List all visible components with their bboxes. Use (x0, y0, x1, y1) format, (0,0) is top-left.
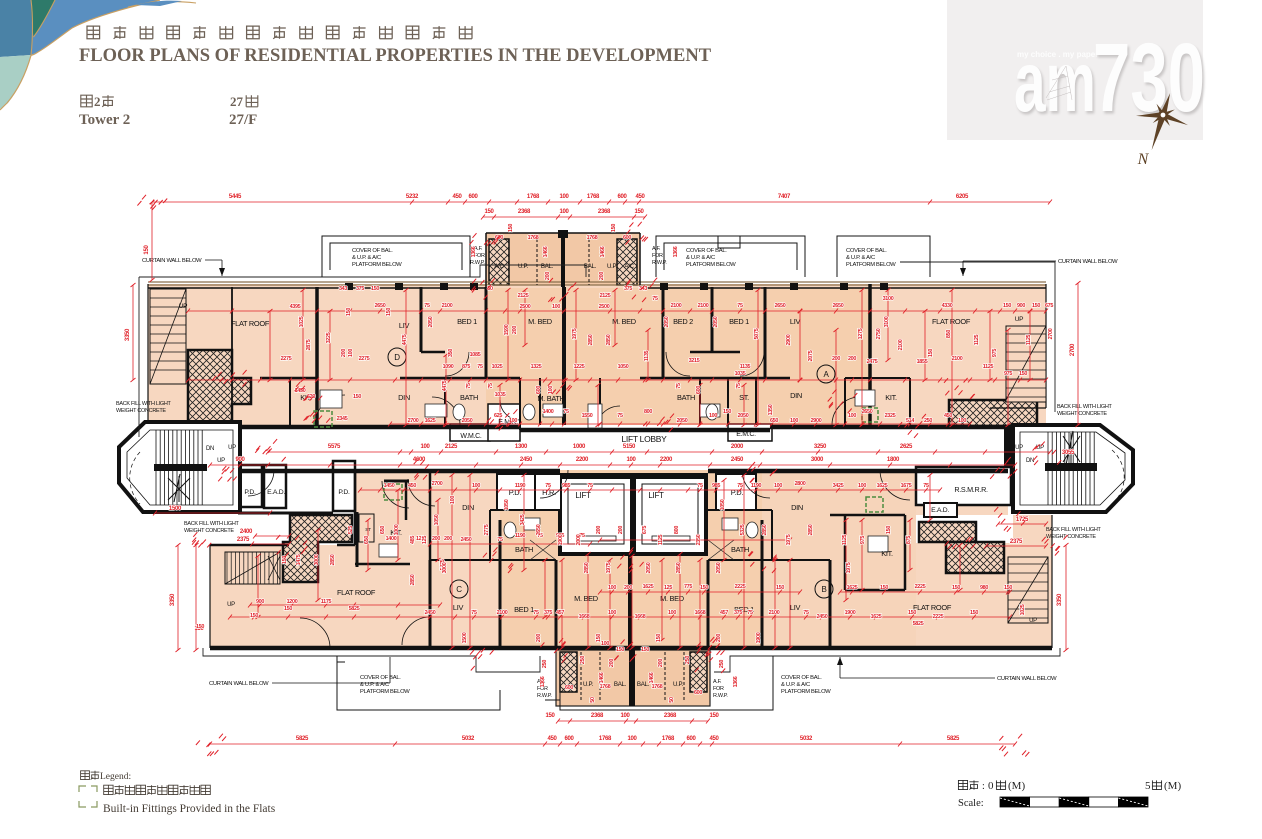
svg-text:3250: 3250 (814, 444, 827, 450)
svg-text:2225: 2225 (735, 584, 746, 590)
svg-text:5: 5 (1145, 780, 1151, 792)
svg-text:150: 150 (196, 624, 204, 630)
svg-text:WEIGHT CONCRETE: WEIGHT CONCRETE (1057, 411, 1107, 417)
svg-text:2368: 2368 (518, 209, 531, 215)
svg-text:CURTAIN WALL BELOW: CURTAIN WALL BELOW (142, 258, 202, 264)
svg-text:1225: 1225 (574, 364, 585, 370)
svg-text:1175: 1175 (321, 599, 332, 605)
svg-text:LIV: LIV (399, 321, 410, 330)
svg-text:FOR: FOR (713, 686, 724, 692)
svg-text:2345: 2345 (337, 416, 348, 422)
svg-text:150: 150 (611, 224, 617, 232)
svg-text:650: 650 (380, 526, 386, 534)
svg-text:UP: UP (228, 445, 236, 451)
svg-text:1050: 1050 (618, 364, 629, 370)
svg-text:WEIGHT CONCRETE: WEIGHT CONCRETE (1046, 534, 1096, 540)
svg-text:625: 625 (494, 413, 502, 419)
svg-text:Legend:: Legend: (100, 772, 131, 782)
svg-text:200: 200 (832, 356, 840, 362)
svg-text:1625: 1625 (643, 584, 654, 590)
svg-text:2050: 2050 (716, 562, 722, 573)
svg-text:1768: 1768 (527, 194, 540, 200)
svg-text:2850: 2850 (330, 554, 336, 565)
svg-text:75: 75 (676, 383, 682, 389)
svg-text:LIV: LIV (790, 603, 801, 612)
svg-text:450: 450 (408, 483, 416, 489)
svg-text:U.P.: U.P. (583, 681, 594, 688)
svg-text:2200: 2200 (660, 457, 673, 463)
svg-text:2625: 2625 (900, 444, 913, 450)
svg-text:100: 100 (668, 610, 676, 616)
svg-text:E.A.D.: E.A.D. (931, 507, 949, 514)
svg-text:1366: 1366 (471, 246, 477, 257)
svg-text:150: 150 (1019, 371, 1027, 377)
svg-text:1625: 1625 (871, 614, 882, 620)
svg-text:BAL.: BAL. (637, 681, 650, 688)
svg-text:2225: 2225 (915, 584, 926, 590)
svg-text:75: 75 (736, 383, 742, 389)
svg-text:200: 200 (596, 526, 602, 534)
svg-text:2775: 2775 (484, 524, 490, 535)
svg-text:1400: 1400 (386, 536, 397, 542)
svg-text:BED 2: BED 2 (673, 317, 693, 326)
svg-text:100: 100 (774, 483, 782, 489)
svg-text:1000: 1000 (394, 524, 400, 535)
svg-text:900: 900 (1017, 303, 1025, 309)
svg-text:2900: 2900 (786, 334, 792, 345)
svg-text:W.M.C.: W.M.C. (460, 433, 481, 440)
svg-text:1035: 1035 (735, 371, 746, 377)
svg-text:WEIGHT CONCRETE: WEIGHT CONCRETE (184, 528, 234, 534)
svg-text:5032: 5032 (462, 736, 475, 742)
svg-text:BAL.: BAL. (614, 681, 627, 688)
svg-text:0: 0 (988, 780, 994, 792)
svg-text:am: am (1014, 35, 1096, 130)
svg-text:3000: 3000 (811, 457, 824, 463)
svg-text:LIV: LIV (453, 603, 464, 612)
svg-text:343: 343 (339, 286, 347, 292)
svg-text:1668: 1668 (695, 610, 706, 616)
svg-text:C: C (456, 585, 462, 594)
svg-text:485: 485 (410, 536, 416, 544)
svg-text:R.S.M.R.R.: R.S.M.R.R. (954, 485, 988, 494)
svg-text:100: 100 (608, 610, 616, 616)
svg-text:2125: 2125 (600, 293, 611, 299)
svg-text:75: 75 (471, 610, 477, 616)
svg-text:75: 75 (587, 483, 593, 489)
svg-text:4395: 4395 (290, 304, 301, 310)
svg-text:2100: 2100 (442, 303, 453, 309)
svg-text:150: 150 (970, 610, 978, 616)
svg-text:1325: 1325 (531, 364, 542, 370)
svg-text:525: 525 (348, 526, 354, 534)
svg-text:350: 350 (448, 349, 454, 357)
svg-text:P.D.: P.D. (338, 489, 350, 496)
svg-text:BACK FILL WITH LIGHT: BACK FILL WITH LIGHT (116, 401, 172, 407)
svg-text:DN: DN (1026, 458, 1034, 464)
svg-text:FLAT ROOF: FLAT ROOF (337, 588, 376, 597)
svg-text:150: 150 (371, 286, 379, 292)
svg-text:27/F: 27/F (229, 112, 257, 128)
svg-text:2450: 2450 (520, 457, 533, 463)
svg-text:3425: 3425 (520, 514, 526, 525)
svg-text:BAL.: BAL. (541, 263, 554, 270)
svg-text:800: 800 (644, 409, 652, 415)
svg-text:2000: 2000 (731, 444, 744, 450)
svg-text:150: 150 (886, 526, 892, 534)
svg-text:1625: 1625 (425, 418, 436, 424)
svg-text:1768: 1768 (528, 235, 539, 241)
svg-text:FLAT ROOF: FLAT ROOF (231, 319, 270, 328)
svg-text:R.W.P.: R.W.P. (470, 260, 485, 266)
svg-text:3000: 3000 (314, 554, 320, 565)
svg-text:2050: 2050 (428, 316, 434, 327)
svg-text:1550: 1550 (582, 413, 593, 419)
svg-text:R.W.P.: R.W.P. (713, 693, 728, 699)
svg-text:2750: 2750 (876, 328, 882, 339)
svg-text:75: 75 (617, 413, 623, 419)
svg-text:R.W.P.: R.W.P. (652, 260, 667, 266)
svg-text:3350: 3350 (1057, 593, 1063, 606)
svg-text:650: 650 (770, 418, 778, 424)
svg-text:150: 150 (353, 394, 361, 400)
svg-text:100: 100 (848, 413, 856, 419)
svg-text:450: 450 (547, 736, 557, 742)
svg-text:150: 150 (700, 585, 708, 591)
svg-text:1050: 1050 (504, 499, 510, 510)
svg-text:2875: 2875 (306, 339, 312, 350)
svg-text:2275: 2275 (359, 356, 370, 362)
svg-text:200: 200 (341, 349, 347, 357)
svg-text:2050: 2050 (462, 418, 473, 424)
svg-text:100: 100 (790, 418, 798, 424)
svg-text:2375: 2375 (1010, 539, 1023, 545)
svg-text:2368: 2368 (664, 713, 677, 719)
svg-text:100: 100 (626, 457, 636, 463)
svg-text:450: 450 (452, 194, 462, 200)
svg-text:600: 600 (536, 386, 542, 394)
svg-text:1366: 1366 (540, 676, 546, 687)
svg-text:BATH: BATH (731, 545, 749, 554)
svg-text:FLAT ROOF: FLAT ROOF (932, 317, 971, 326)
svg-text:2700: 2700 (1048, 328, 1054, 339)
svg-text:2350: 2350 (696, 534, 702, 545)
svg-text:FLAT ROOF: FLAT ROOF (913, 603, 952, 612)
svg-text:75: 75 (477, 364, 483, 370)
svg-text:2850: 2850 (808, 524, 814, 535)
svg-text:1190: 1190 (751, 483, 762, 489)
svg-text:& U.P. & A/C: & U.P. & A/C (846, 255, 875, 261)
svg-text:1366: 1366 (673, 246, 679, 257)
svg-text:2850: 2850 (762, 524, 768, 535)
svg-text:2800: 2800 (795, 481, 806, 487)
svg-text:150: 150 (776, 585, 784, 591)
svg-text:375: 375 (624, 286, 632, 292)
svg-text:1025: 1025 (492, 364, 503, 370)
svg-text:1125: 1125 (658, 534, 664, 545)
svg-text:1800: 1800 (887, 457, 900, 463)
svg-text:2050: 2050 (713, 316, 719, 327)
svg-text:1500: 1500 (169, 506, 182, 512)
svg-text:50: 50 (590, 697, 596, 703)
svg-text:5325: 5325 (740, 524, 746, 535)
svg-text:250: 250 (580, 656, 586, 664)
svg-text:5825: 5825 (296, 736, 309, 742)
svg-text:150: 150 (386, 308, 392, 316)
svg-text:A.F.: A.F. (652, 246, 661, 252)
svg-text:2125: 2125 (518, 293, 529, 299)
svg-text:600: 600 (694, 690, 702, 696)
svg-text:200: 200 (432, 536, 440, 542)
svg-text:5825: 5825 (913, 621, 924, 627)
svg-text:1768: 1768 (587, 194, 600, 200)
svg-text:150: 150 (616, 647, 624, 653)
svg-text:2075: 2075 (808, 350, 814, 361)
svg-text:3215: 3215 (689, 358, 700, 364)
svg-text:KIT.: KIT. (881, 549, 893, 558)
svg-text:1025: 1025 (1020, 604, 1026, 615)
svg-text:2368: 2368 (591, 713, 604, 719)
svg-text:3100: 3100 (884, 316, 890, 327)
svg-text:125: 125 (664, 585, 672, 591)
svg-text:1090: 1090 (443, 364, 454, 370)
svg-text:UP: UP (1015, 445, 1023, 451)
svg-text:& U.P. & A/C: & U.P. & A/C (352, 255, 381, 261)
svg-text:50: 50 (487, 286, 493, 292)
svg-text:100: 100 (559, 194, 569, 200)
svg-text:27: 27 (230, 94, 244, 109)
svg-text:H.R.: H.R. (542, 488, 556, 497)
svg-text:1125: 1125 (974, 334, 980, 345)
svg-text:75: 75 (488, 383, 494, 389)
svg-text:457: 457 (556, 610, 564, 616)
svg-text:LIV: LIV (790, 317, 801, 326)
svg-text:PLATFORM BELOW: PLATFORM BELOW (781, 689, 831, 695)
svg-text:75: 75 (737, 303, 743, 309)
svg-text:A/C: A/C (494, 263, 504, 270)
svg-text:CURTAIN WALL BELOW: CURTAIN WALL BELOW (997, 676, 1057, 682)
svg-text:UP: UP (227, 602, 235, 608)
svg-text:1085: 1085 (470, 352, 481, 358)
svg-text:CURTAIN WALL BELOW: CURTAIN WALL BELOW (1058, 259, 1118, 265)
svg-text:7407: 7407 (778, 194, 791, 200)
svg-text:1768: 1768 (599, 736, 612, 742)
svg-text:2700: 2700 (1070, 343, 1076, 356)
svg-text:2450: 2450 (461, 537, 472, 543)
svg-text:100: 100 (601, 641, 609, 647)
svg-text:650: 650 (364, 536, 370, 544)
svg-text:BED 1: BED 1 (729, 317, 749, 326)
svg-text:200: 200 (658, 659, 664, 667)
svg-text:375: 375 (544, 610, 552, 616)
svg-text:100: 100 (858, 483, 866, 489)
svg-text:2500: 2500 (520, 304, 531, 310)
svg-text:2100: 2100 (497, 610, 508, 616)
svg-text:2850: 2850 (676, 562, 682, 573)
svg-text:5825: 5825 (947, 736, 960, 742)
svg-text:M. BED: M. BED (574, 594, 598, 603)
svg-text:BAL.: BAL. (584, 263, 597, 270)
svg-text:5150: 5150 (623, 444, 636, 450)
svg-text:2850: 2850 (584, 562, 590, 573)
svg-text:75: 75 (803, 610, 809, 616)
svg-text:1668: 1668 (635, 614, 646, 620)
svg-text:1466: 1466 (543, 246, 549, 257)
svg-text:150: 150 (545, 713, 555, 719)
svg-text:975: 975 (992, 349, 998, 357)
svg-text:2500: 2500 (599, 304, 610, 310)
svg-text:1466: 1466 (600, 246, 606, 257)
svg-text:1975: 1975 (572, 328, 578, 339)
svg-text:Built-in Fittings Provided in: Built-in Fittings Provided in the Flats (103, 803, 276, 815)
svg-text:& U.P. & A/C: & U.P. & A/C (781, 682, 810, 688)
svg-text:2700: 2700 (408, 418, 419, 424)
svg-text:2450: 2450 (817, 614, 828, 620)
svg-text:200: 200 (599, 272, 605, 280)
svg-text:BACK FILL WITH LIGHT: BACK FILL WITH LIGHT (1046, 527, 1102, 533)
svg-text:150: 150 (880, 585, 888, 591)
svg-text:2650: 2650 (833, 303, 844, 309)
svg-text:1768: 1768 (662, 736, 675, 742)
svg-text:A/C: A/C (624, 263, 634, 270)
svg-text:250: 250 (685, 656, 691, 664)
svg-text:1450: 1450 (384, 483, 395, 489)
svg-text:CURTAIN WALL BELOW: CURTAIN WALL BELOW (209, 681, 269, 687)
svg-text:1475: 1475 (296, 554, 302, 565)
svg-text:100: 100 (620, 713, 630, 719)
svg-text:B: B (821, 585, 826, 594)
svg-text:5825: 5825 (349, 606, 360, 612)
svg-text:975: 975 (1004, 371, 1012, 377)
svg-text:600: 600 (565, 685, 573, 691)
svg-text:2125: 2125 (445, 444, 458, 450)
svg-text:250: 250 (924, 418, 932, 424)
svg-text:600: 600 (623, 235, 631, 241)
svg-text:2650: 2650 (775, 303, 786, 309)
svg-text:2050: 2050 (646, 562, 652, 573)
svg-text:D: D (394, 353, 400, 362)
svg-text:3055: 3055 (1062, 450, 1075, 456)
svg-text:1366: 1366 (733, 676, 739, 687)
svg-text:1625: 1625 (877, 483, 888, 489)
svg-text:100: 100 (348, 349, 354, 357)
svg-text:1350: 1350 (768, 404, 774, 415)
svg-text:900: 900 (256, 599, 264, 605)
svg-text:200: 200 (512, 326, 518, 334)
svg-text:5575: 5575 (328, 444, 341, 450)
svg-text:P.D.: P.D. (509, 488, 522, 497)
svg-text:& U.P. & A/C: & U.P. & A/C (686, 255, 715, 261)
svg-text:2900: 2900 (811, 418, 822, 424)
svg-text:600: 600 (564, 736, 574, 742)
svg-text:LIFT LOBBY: LIFT LOBBY (621, 434, 667, 444)
svg-text:1125: 1125 (1026, 334, 1032, 345)
svg-text:1855: 1855 (917, 359, 928, 365)
svg-text:75: 75 (563, 409, 569, 415)
svg-text:LIFT: LIFT (648, 491, 664, 500)
svg-text:3350: 3350 (125, 328, 131, 341)
svg-text:1625: 1625 (847, 585, 858, 591)
svg-text:75: 75 (497, 537, 503, 543)
svg-text:COVER OF BAL.: COVER OF BAL. (846, 248, 887, 254)
svg-text:150: 150 (1003, 303, 1011, 309)
svg-text:PLATFORM BELOW: PLATFORM BELOW (846, 262, 896, 268)
svg-text:UP: UP (1036, 445, 1044, 451)
svg-text:150: 150 (484, 209, 494, 215)
svg-text:1975: 1975 (846, 562, 852, 573)
svg-text:1035: 1035 (495, 392, 506, 398)
svg-text:DIN: DIN (791, 503, 803, 512)
svg-text:5032: 5032 (800, 736, 813, 742)
svg-text:UP: UP (217, 458, 225, 464)
svg-text::: : (982, 781, 985, 792)
svg-text:985: 985 (562, 483, 570, 489)
svg-text:150: 150 (709, 713, 719, 719)
svg-text:450: 450 (709, 736, 719, 742)
svg-text:WEIGHT CONCRETE: WEIGHT CONCRETE (116, 408, 166, 414)
svg-text:BATH: BATH (677, 393, 695, 402)
svg-text:875: 875 (462, 364, 470, 370)
svg-text:1125: 1125 (983, 364, 994, 370)
svg-text:2100: 2100 (769, 610, 780, 616)
svg-text:2000: 2000 (576, 534, 582, 545)
svg-text:BED 1: BED 1 (457, 317, 477, 326)
svg-text:PLATFORM BELOW: PLATFORM BELOW (686, 262, 736, 268)
svg-text:2100: 2100 (898, 339, 904, 350)
svg-text:100: 100 (552, 304, 560, 310)
svg-text:75: 75 (545, 483, 551, 489)
svg-text:COVER OF BAL.: COVER OF BAL. (781, 675, 822, 681)
svg-text:100: 100 (420, 444, 430, 450)
svg-text:200: 200 (848, 356, 856, 362)
svg-text:450: 450 (635, 194, 645, 200)
svg-text:1725: 1725 (1016, 517, 1029, 523)
svg-text:150: 150 (508, 224, 514, 232)
svg-text:150: 150 (656, 634, 662, 642)
svg-text:1768: 1768 (652, 684, 663, 690)
svg-text:4475: 4475 (402, 334, 408, 345)
svg-text:1400: 1400 (543, 409, 554, 415)
svg-text:1590: 1590 (504, 324, 510, 335)
svg-text:75: 75 (697, 483, 703, 489)
svg-text:150: 150 (928, 349, 934, 357)
svg-text:50: 50 (669, 697, 675, 703)
svg-text:1050: 1050 (434, 514, 440, 525)
svg-text:100: 100 (709, 413, 717, 419)
svg-text:2850: 2850 (606, 334, 612, 345)
svg-text:150: 150 (346, 308, 352, 316)
svg-text:150: 150 (634, 209, 644, 215)
svg-text:1050: 1050 (720, 499, 726, 510)
svg-text:75: 75 (424, 303, 430, 309)
svg-text:BED 1: BED 1 (514, 605, 534, 614)
svg-text:P.D.: P.D. (244, 489, 256, 496)
svg-text:4475: 4475 (442, 380, 448, 391)
svg-text:2450: 2450 (731, 457, 744, 463)
svg-text:U.P.: U.P. (673, 681, 684, 688)
svg-text:2200: 2200 (576, 457, 589, 463)
svg-text:PLATFORM BELOW: PLATFORM BELOW (360, 689, 410, 695)
svg-text:1900: 1900 (756, 632, 762, 643)
svg-text:A.F.: A.F. (713, 679, 722, 685)
svg-text:COVER OF BAL.: COVER OF BAL. (360, 675, 401, 681)
svg-text:5232: 5232 (406, 194, 419, 200)
svg-text:& U.P. & A/C: & U.P. & A/C (360, 682, 389, 688)
svg-text:M. BATH: M. BATH (537, 394, 564, 403)
svg-text:150: 150 (908, 610, 916, 616)
svg-text:1975: 1975 (786, 534, 792, 545)
svg-text:1675: 1675 (901, 483, 912, 489)
